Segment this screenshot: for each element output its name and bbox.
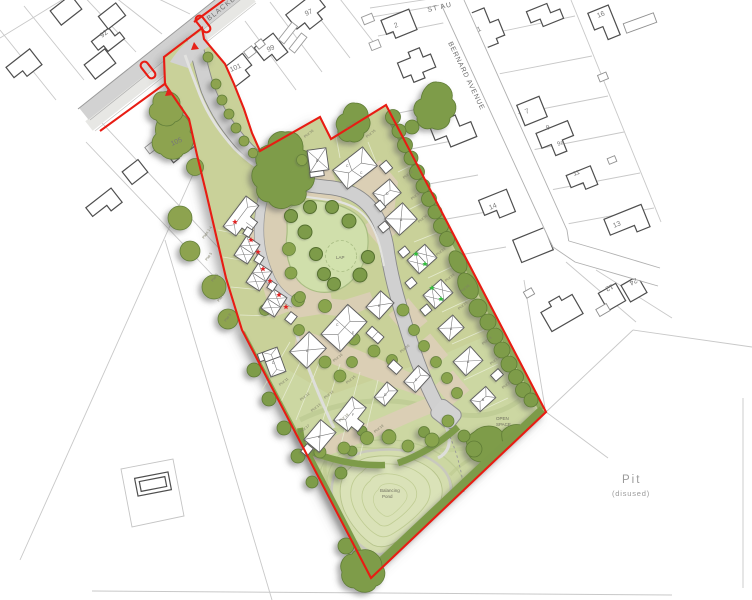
svg-text:Pit: Pit xyxy=(622,474,641,486)
svg-text:F: F xyxy=(352,413,354,417)
svg-text:Pond: Pond xyxy=(382,494,393,499)
svg-text:OPEN: OPEN xyxy=(496,416,509,421)
svg-text:LAP: LAP xyxy=(336,255,345,260)
svg-text:SPACE: SPACE xyxy=(496,422,511,427)
svg-text:(disused): (disused) xyxy=(612,489,650,498)
svg-text:Balancing: Balancing xyxy=(380,488,400,493)
